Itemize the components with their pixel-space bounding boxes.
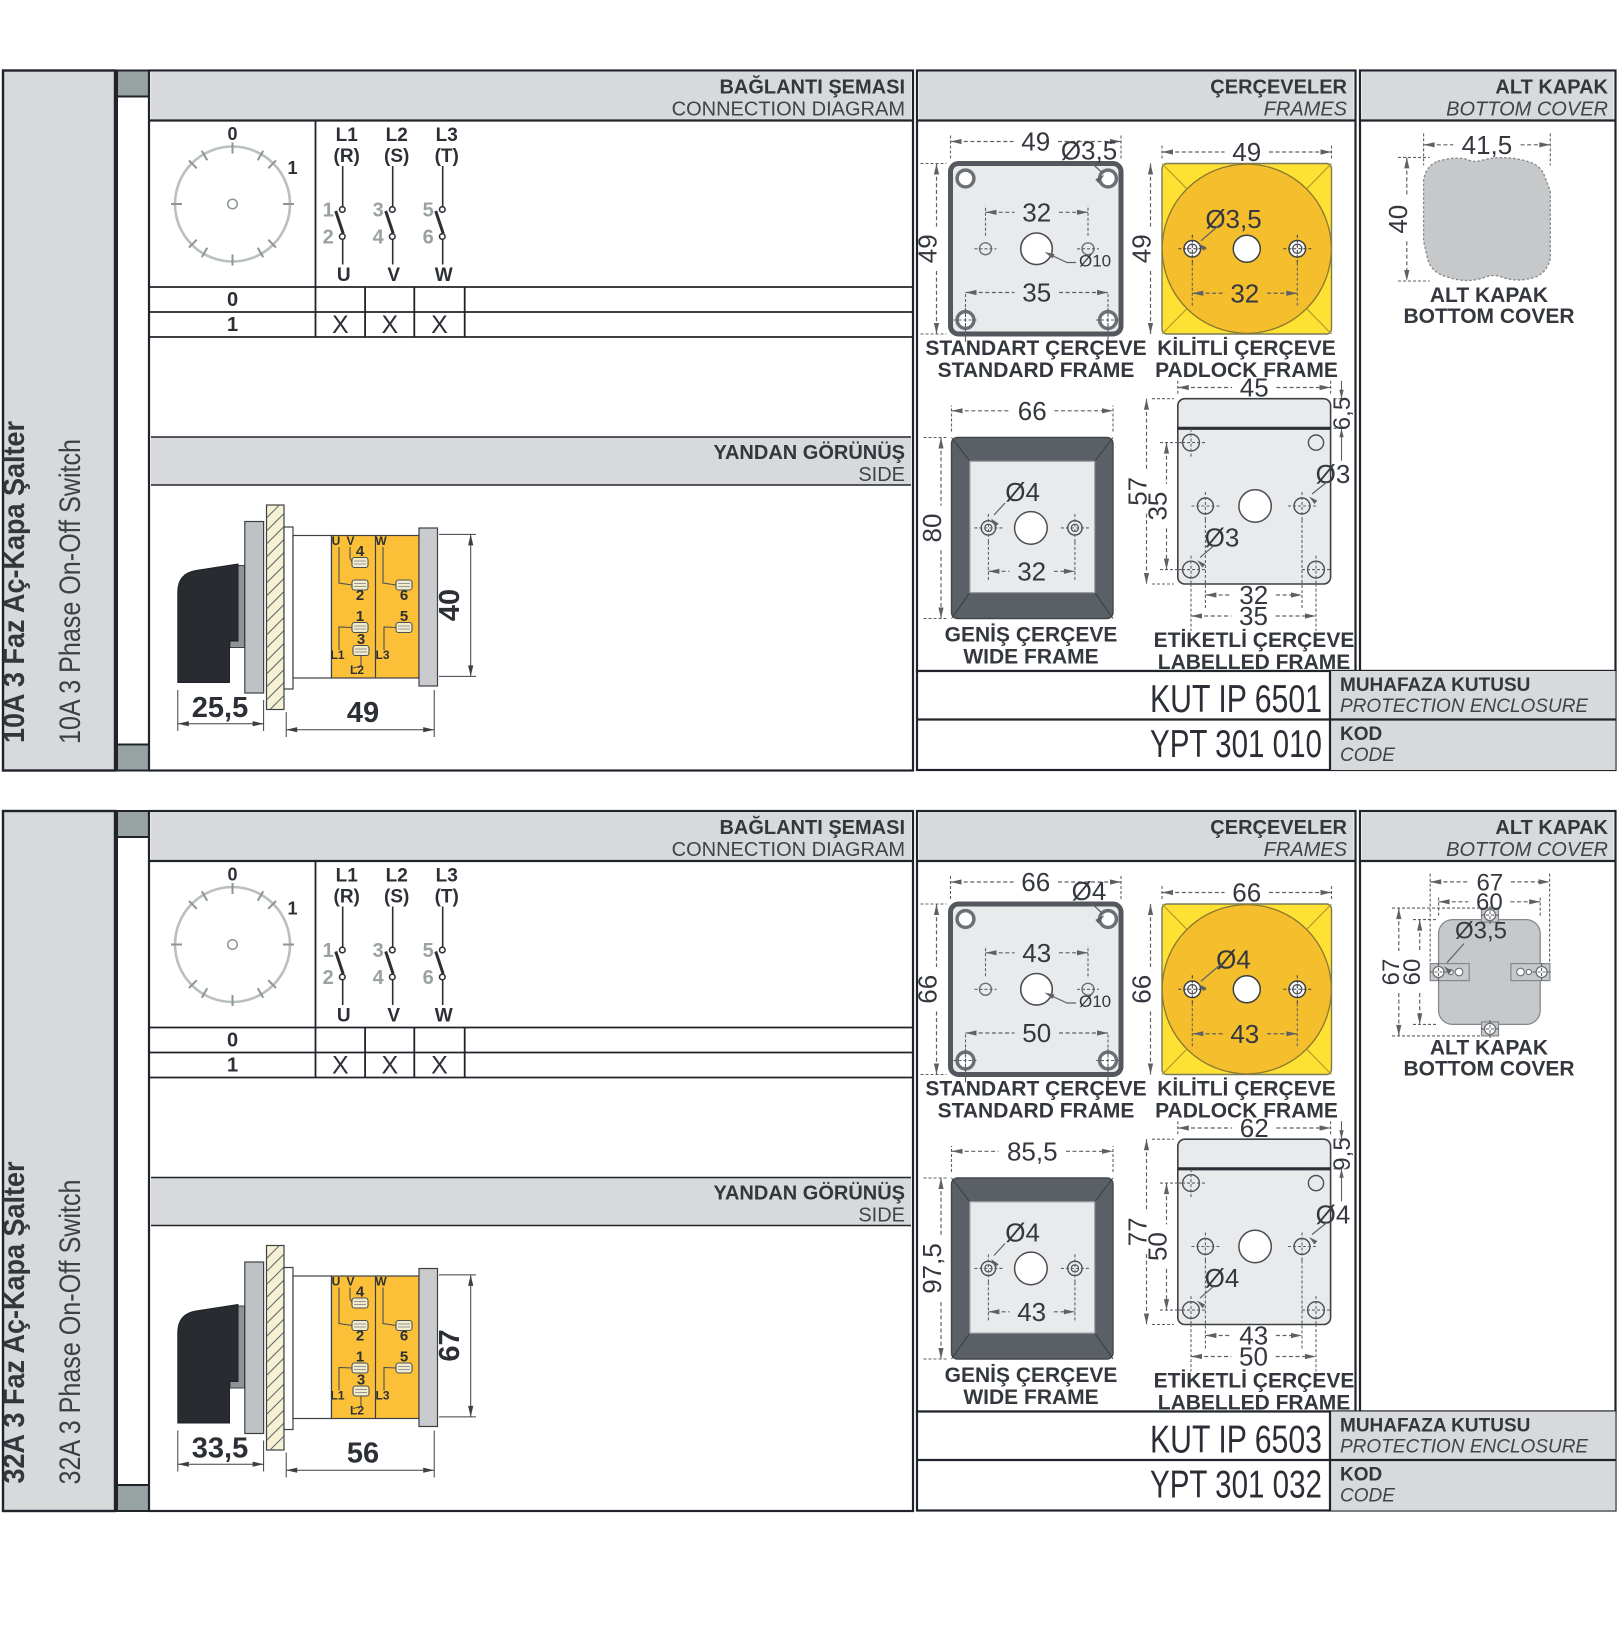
svg-text:WIDE FRAME: WIDE FRAME [963, 1386, 1098, 1409]
svg-text:3: 3 [357, 631, 365, 648]
svg-text:9,5: 9,5 [1329, 1137, 1356, 1170]
svg-text:V: V [387, 265, 400, 286]
svg-text:32: 32 [1230, 278, 1259, 308]
svg-text:BOTTOM COVER: BOTTOM COVER [1403, 305, 1574, 328]
svg-text:L1: L1 [336, 866, 359, 887]
svg-text:49: 49 [1021, 127, 1050, 157]
svg-text:2: 2 [356, 587, 364, 604]
svg-text:32A 3 Faz Aç-Kapa Şalter: 32A 3 Faz Aç-Kapa Şalter [0, 1161, 31, 1483]
svg-text:35: 35 [1239, 601, 1268, 631]
svg-text:49: 49 [1127, 234, 1157, 263]
svg-text:40: 40 [1383, 205, 1413, 234]
svg-text:YPT 301 010: YPT 301 010 [1150, 723, 1322, 766]
svg-text:49: 49 [1232, 137, 1261, 167]
svg-text:66: 66 [1021, 867, 1050, 897]
svg-text:KİLİTLİ ÇERÇEVE: KİLİTLİ ÇERÇEVE [1157, 1078, 1336, 1101]
svg-text:PROTECTION ENCLOSURE: PROTECTION ENCLOSURE [1340, 1437, 1588, 1458]
svg-text:50: 50 [1143, 1232, 1173, 1261]
svg-text:(T): (T) [435, 146, 459, 167]
svg-text:1: 1 [323, 200, 334, 222]
svg-text:1: 1 [323, 940, 334, 962]
svg-text:66: 66 [913, 975, 943, 1004]
svg-text:0: 0 [227, 865, 237, 885]
svg-text:35: 35 [1022, 278, 1051, 308]
svg-text:FRAMES: FRAMES [1264, 839, 1348, 861]
svg-text:50: 50 [1239, 1342, 1268, 1372]
svg-text:KOD: KOD [1340, 724, 1382, 745]
svg-text:Ø10: Ø10 [1079, 992, 1111, 1011]
svg-text:SIDE: SIDE [858, 464, 905, 486]
svg-text:66: 66 [1127, 975, 1157, 1004]
svg-text:0: 0 [227, 124, 237, 144]
svg-text:Ø4: Ø4 [1005, 477, 1040, 507]
svg-text:X: X [332, 311, 349, 339]
svg-text:WIDE FRAME: WIDE FRAME [963, 646, 1098, 669]
svg-text:MUHAFAZA KUTUSU: MUHAFAZA KUTUSU [1340, 1416, 1530, 1437]
svg-text:X: X [431, 311, 448, 339]
svg-text:X: X [382, 311, 399, 339]
svg-text:ALT KAPAK: ALT KAPAK [1430, 1036, 1548, 1059]
svg-text:3: 3 [373, 200, 384, 222]
svg-text:(T): (T) [435, 887, 459, 908]
svg-text:L1: L1 [330, 648, 344, 662]
svg-text:49: 49 [913, 234, 943, 263]
svg-text:Ø4: Ø4 [1005, 1218, 1040, 1248]
svg-text:V: V [387, 1006, 400, 1027]
svg-text:49: 49 [347, 697, 379, 729]
svg-text:97,5: 97,5 [917, 1243, 947, 1294]
svg-text:3: 3 [357, 1372, 365, 1389]
svg-text:STANDARD FRAME: STANDARD FRAME [938, 359, 1135, 382]
svg-text:Ø4: Ø4 [1316, 1200, 1351, 1230]
svg-text:5: 5 [400, 608, 408, 625]
svg-text:35: 35 [1143, 492, 1173, 521]
svg-text:BOTTOM COVER: BOTTOM COVER [1446, 99, 1608, 121]
svg-text:66: 66 [1232, 878, 1261, 908]
svg-text:1: 1 [227, 1055, 238, 1077]
svg-text:L2: L2 [386, 866, 408, 887]
svg-text:CONNECTION DIAGRAM: CONNECTION DIAGRAM [672, 839, 905, 861]
svg-text:GENİŞ ÇERÇEVE: GENİŞ ÇERÇEVE [945, 624, 1118, 647]
svg-text:L3: L3 [375, 648, 389, 662]
svg-text:CODE: CODE [1340, 745, 1395, 766]
svg-text:Ø3: Ø3 [1316, 459, 1351, 489]
svg-text:(S): (S) [384, 887, 409, 908]
svg-text:40: 40 [434, 589, 466, 621]
svg-text:6: 6 [400, 1328, 408, 1345]
svg-text:STANDARD FRAME: STANDARD FRAME [938, 1100, 1135, 1123]
svg-text:ALT KAPAK: ALT KAPAK [1495, 817, 1608, 839]
svg-text:L2: L2 [350, 663, 364, 677]
svg-text:4: 4 [373, 227, 385, 249]
svg-text:GENİŞ ÇERÇEVE: GENİŞ ÇERÇEVE [945, 1364, 1118, 1387]
svg-text:0: 0 [227, 289, 238, 311]
svg-text:85,5: 85,5 [1007, 1136, 1058, 1166]
svg-text:CODE: CODE [1340, 1486, 1395, 1507]
svg-text:YPT 301 032: YPT 301 032 [1150, 1464, 1322, 1507]
svg-text:45: 45 [1240, 373, 1269, 403]
svg-text:V: V [346, 1275, 354, 1289]
svg-text:25,5: 25,5 [192, 692, 248, 724]
svg-text:BOTTOM COVER: BOTTOM COVER [1403, 1057, 1574, 1080]
svg-text:PROTECTION ENCLOSURE: PROTECTION ENCLOSURE [1340, 696, 1588, 717]
svg-text:50: 50 [1022, 1018, 1051, 1048]
svg-text:V: V [346, 534, 354, 548]
svg-text:2: 2 [323, 227, 334, 249]
svg-text:Ø4: Ø4 [1205, 1263, 1240, 1293]
svg-text:ÇERÇEVELER: ÇERÇEVELER [1210, 77, 1347, 99]
svg-text:FRAMES: FRAMES [1264, 99, 1348, 121]
svg-text:33,5: 33,5 [192, 1433, 248, 1465]
svg-text:5: 5 [400, 1349, 408, 1366]
svg-text:66: 66 [1018, 396, 1047, 426]
svg-text:80: 80 [917, 514, 947, 543]
svg-text:1: 1 [356, 608, 364, 625]
svg-text:6: 6 [423, 967, 434, 989]
svg-text:56: 56 [347, 1438, 379, 1470]
svg-text:1: 1 [356, 1349, 364, 1366]
svg-text:MUHAFAZA KUTUSU: MUHAFAZA KUTUSU [1340, 675, 1530, 696]
svg-text:2: 2 [323, 967, 334, 989]
svg-text:1: 1 [227, 314, 238, 336]
svg-text:(R): (R) [334, 887, 360, 908]
svg-text:5: 5 [423, 940, 434, 962]
svg-text:1: 1 [287, 899, 297, 919]
svg-text:L1: L1 [336, 125, 359, 146]
svg-text:YANDAN GÖRÜNÜŞ: YANDAN GÖRÜNÜŞ [713, 441, 905, 464]
svg-text:BAĞLANTI ŞEMASI: BAĞLANTI ŞEMASI [719, 815, 905, 839]
svg-text:41,5: 41,5 [1462, 130, 1513, 160]
svg-text:KUT IP 6501: KUT IP 6501 [1150, 678, 1322, 721]
svg-text:L2: L2 [350, 1404, 364, 1418]
svg-text:4: 4 [356, 543, 365, 560]
svg-text:Ø3,5: Ø3,5 [1455, 918, 1507, 945]
svg-text:ETİKETLİ ÇERÇEVE: ETİKETLİ ÇERÇEVE [1154, 629, 1355, 652]
svg-text:W: W [435, 1006, 453, 1027]
svg-text:W: W [435, 265, 453, 286]
svg-text:0: 0 [227, 1030, 238, 1052]
svg-text:BAĞLANTI ŞEMASI: BAĞLANTI ŞEMASI [719, 75, 905, 99]
svg-text:X: X [382, 1052, 399, 1080]
svg-text:60: 60 [1476, 889, 1503, 916]
svg-text:6: 6 [400, 587, 408, 604]
svg-text:CONNECTION DIAGRAM: CONNECTION DIAGRAM [672, 99, 905, 121]
svg-text:ALT KAPAK: ALT KAPAK [1430, 284, 1548, 307]
svg-text:X: X [332, 1052, 349, 1080]
svg-text:L3: L3 [375, 1389, 389, 1403]
svg-text:62: 62 [1240, 1113, 1269, 1143]
svg-text:L3: L3 [436, 866, 458, 887]
svg-text:U: U [337, 265, 351, 286]
svg-text:YANDAN GÖRÜNÜŞ: YANDAN GÖRÜNÜŞ [713, 1182, 905, 1205]
svg-text:32: 32 [1017, 556, 1046, 586]
svg-text:ALT KAPAK: ALT KAPAK [1495, 77, 1608, 99]
svg-text:6: 6 [423, 227, 434, 249]
svg-text:W: W [375, 534, 387, 548]
svg-text:32: 32 [1022, 197, 1051, 227]
svg-text:L2: L2 [386, 125, 408, 146]
svg-text:2: 2 [356, 1328, 364, 1345]
svg-text:4: 4 [356, 1284, 365, 1301]
svg-text:SIDE: SIDE [858, 1205, 905, 1227]
svg-text:1: 1 [287, 158, 297, 178]
svg-text:KUT IP 6503: KUT IP 6503 [1150, 1419, 1322, 1462]
svg-text:(R): (R) [334, 146, 360, 167]
svg-text:10A 3 Faz Aç-Kapa Şalter: 10A 3 Faz Aç-Kapa Şalter [0, 421, 31, 743]
svg-text:L1: L1 [330, 1389, 344, 1403]
svg-text:STANDART ÇERÇEVE: STANDART ÇERÇEVE [925, 1078, 1146, 1101]
svg-text:BOTTOM COVER: BOTTOM COVER [1446, 839, 1608, 861]
svg-text:43: 43 [1022, 938, 1051, 968]
svg-text:STANDART ÇERÇEVE: STANDART ÇERÇEVE [925, 337, 1146, 360]
svg-text:Ø4: Ø4 [1072, 876, 1107, 906]
svg-text:X: X [431, 1052, 448, 1080]
svg-text:43: 43 [1230, 1019, 1259, 1049]
svg-text:U: U [332, 1275, 341, 1289]
svg-text:(S): (S) [384, 146, 409, 167]
svg-text:W: W [375, 1275, 387, 1289]
svg-text:L3: L3 [436, 125, 458, 146]
svg-text:Ø10: Ø10 [1079, 252, 1111, 271]
svg-text:U: U [337, 1006, 351, 1027]
svg-text:3: 3 [373, 940, 384, 962]
svg-text:60: 60 [1399, 959, 1426, 986]
svg-text:6,5: 6,5 [1329, 397, 1356, 430]
svg-text:43: 43 [1017, 1297, 1046, 1327]
svg-text:67: 67 [434, 1329, 466, 1361]
svg-text:KİLİTLİ ÇERÇEVE: KİLİTLİ ÇERÇEVE [1157, 337, 1336, 360]
svg-text:32A 3 Phase On-Off Switch: 32A 3 Phase On-Off Switch [54, 1180, 87, 1485]
svg-text:Ø3: Ø3 [1205, 523, 1240, 553]
svg-text:10A 3 Phase On-Off Switch: 10A 3 Phase On-Off Switch [54, 439, 87, 744]
svg-text:ÇERÇEVELER: ÇERÇEVELER [1210, 817, 1347, 839]
svg-text:KOD: KOD [1340, 1465, 1382, 1486]
svg-text:5: 5 [423, 200, 434, 222]
svg-text:U: U [332, 534, 341, 548]
svg-text:Ø4: Ø4 [1216, 944, 1251, 974]
svg-text:4: 4 [373, 967, 385, 989]
svg-text:Ø3,5: Ø3,5 [1061, 136, 1117, 166]
svg-text:ETİKETLİ ÇERÇEVE: ETİKETLİ ÇERÇEVE [1154, 1370, 1355, 1393]
